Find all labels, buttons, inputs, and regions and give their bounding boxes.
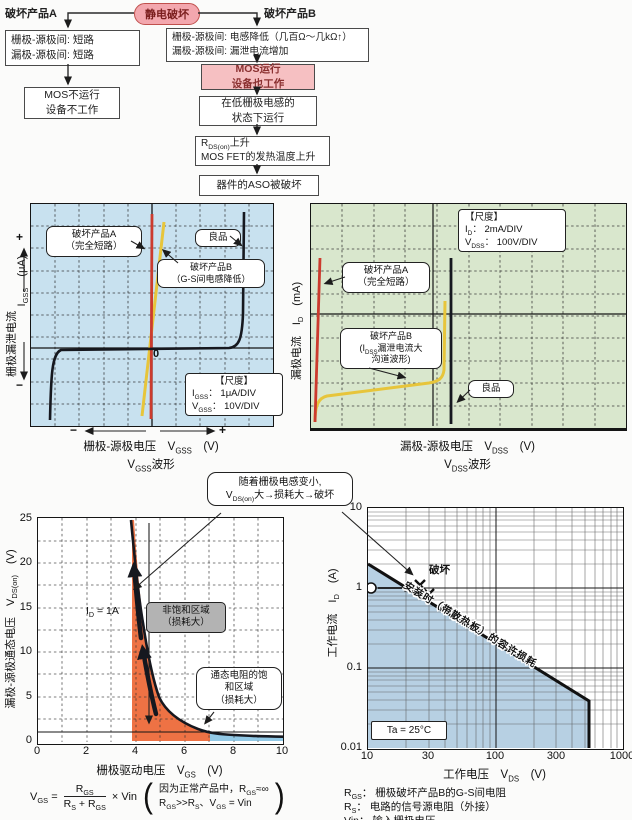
aso-ta-condition: Ta = 25°C bbox=[371, 721, 447, 740]
dss-ann-good: 良品 bbox=[468, 380, 514, 398]
flow-box-a1: 栅极-源极间: 短路 漏极-源极间: 短路 bbox=[5, 30, 140, 66]
gss-zero-label: 0 bbox=[153, 348, 159, 360]
gss-minus-sign: − bbox=[16, 378, 23, 392]
vdson-xtick-2: 2 bbox=[76, 745, 96, 757]
gss-xaxis-plus: + bbox=[219, 423, 226, 437]
aso-chart-plot bbox=[367, 507, 624, 750]
formula-rhs: × Vin bbox=[112, 791, 137, 803]
vdson-xlabel: 栅极驱动电压 VGS (V) bbox=[37, 762, 282, 778]
aso-xtick-100: 100 bbox=[478, 750, 512, 762]
dss-scale-box: 【尺度】 ID： 2mA/DIV VDSS： 100V/DIV bbox=[458, 209, 566, 252]
vdson-ylabel: 漏极-源极通态电压 VDS(on) (V) bbox=[2, 529, 18, 729]
legend-rs: RS： 电路的信号源电阻（外接） bbox=[344, 801, 506, 815]
dss-waveform-label: VDSS波形 bbox=[310, 456, 625, 472]
vdson-region1-label: 非饱和区域 （损耗大） bbox=[146, 602, 226, 633]
aso-chart-svg bbox=[368, 508, 623, 748]
symbol-legend: RGS： 栅极破坏产品B的G-S间电阻 RS： 电路的信号源电阻（外接） Vin… bbox=[344, 787, 506, 820]
vdson-id-label: ID = 1A bbox=[86, 605, 119, 617]
trace-product-a-red bbox=[315, 258, 320, 422]
flow-box-b3: 在低栅极电感的 状态下运行 bbox=[199, 96, 317, 126]
formula-notes: 因为正常产品中，RGS≈∞ RGS>>RS、VGS = Vin bbox=[159, 783, 269, 810]
vdson-ytick-25: 25 bbox=[6, 512, 32, 524]
gss-waveform-label: VGSS波形 bbox=[30, 456, 272, 472]
gss-ylabel-chinese: 栅极漏泄电流 bbox=[3, 299, 19, 389]
aso-xtick-300: 300 bbox=[539, 750, 573, 762]
legend-rgs: RGS： 栅极破坏产品B的G-S间电阻 bbox=[344, 787, 506, 801]
trace-product-a-red bbox=[151, 214, 152, 419]
open-paren: ( bbox=[143, 781, 153, 812]
gss-xlabel: 栅极-源极电压 VGSS (V) bbox=[30, 438, 272, 454]
close-paren: ) bbox=[275, 781, 285, 812]
dss-ylabel: 漏极电流 ID (mA) bbox=[288, 266, 304, 396]
aso-xtick-10: 10 bbox=[350, 750, 384, 762]
vdson-xtick-6: 6 bbox=[174, 745, 194, 757]
aso-xtick-30: 30 bbox=[411, 750, 445, 762]
flow-box-b2: MOS运行 设备也工作 bbox=[201, 64, 315, 90]
dss-xlabel: 漏极-源极电压 VDSS (V) bbox=[310, 438, 625, 454]
vdson-xtick-0: 0 bbox=[27, 745, 47, 757]
vdson-xtick-8: 8 bbox=[223, 745, 243, 757]
flow-arrow-root-to-b bbox=[198, 13, 257, 25]
branch-a-label: 破坏产品A bbox=[5, 5, 57, 21]
vdson-xtick-4: 4 bbox=[125, 745, 145, 757]
aso-xlabel: 工作电压 VDS (V) bbox=[367, 766, 622, 782]
flow-box-b5: 器件的ASO被破坏 bbox=[199, 175, 319, 196]
flow-node-esd: 静电破坏 bbox=[134, 3, 200, 25]
operating-point bbox=[368, 583, 376, 593]
flow-box-b4: RDS(on)上升 MOS FET的发热温度上升 bbox=[195, 136, 330, 166]
gss-ann-product-b: 破坏产品B （G-S间电感降低） bbox=[157, 259, 265, 288]
aso-break-label: 破坏 bbox=[429, 562, 450, 577]
flow-arrow-root-to-a bbox=[68, 13, 134, 27]
dss-ann-product-b: 破坏产品B (IDSS漏泄电流大 沟道波形) bbox=[340, 328, 442, 369]
formula-fraction: RGS RS + RGS bbox=[64, 783, 106, 810]
legend-vin: Vin： 输入栅极电压 bbox=[344, 815, 506, 820]
figure-root: 破坏产品A 破坏产品B 静电破坏 栅极-源极间: 短路 漏极-源极间: 短路 M… bbox=[0, 0, 632, 820]
gss-scale-box: 【尺度】 IGSS： 1μA/DIV VGSS： 10V/DIV bbox=[185, 373, 283, 416]
gss-xaxis-minus: − bbox=[70, 423, 77, 437]
aso-xtick-1000: 1000 bbox=[605, 750, 632, 762]
gate-impedance-callout: 随着栅极电感变小, VDS(on)大→损耗大→破坏 bbox=[207, 472, 353, 506]
branch-b-label: 破坏产品B bbox=[264, 5, 316, 21]
vdson-region2-label: 通态电阻的饱 和区域 （损耗大） bbox=[196, 667, 282, 710]
dss-ann-product-a: 破坏产品A （完全短路） bbox=[342, 262, 430, 293]
flow-box-b1: 栅极-源极间: 电感降低（几百Ω～几kΩ↑） 漏极-源极间: 漏泄电流增加 bbox=[166, 28, 369, 62]
formula-lhs: VGS = bbox=[30, 791, 58, 803]
gss-ann-product-a: 破坏产品A （完全短路） bbox=[46, 226, 142, 257]
flow-box-a2: MOS不运行 设备不工作 bbox=[24, 87, 120, 119]
gss-ann-good: 良品 bbox=[195, 229, 241, 247]
aso-ylabel: 工作电流 ID (A) bbox=[324, 553, 340, 673]
gate-voltage-formula: VGS = RGS RS + RGS × Vin ( 因为正常产品中，RGS≈∞… bbox=[30, 783, 285, 810]
vdson-xtick-10: 10 bbox=[272, 745, 292, 757]
